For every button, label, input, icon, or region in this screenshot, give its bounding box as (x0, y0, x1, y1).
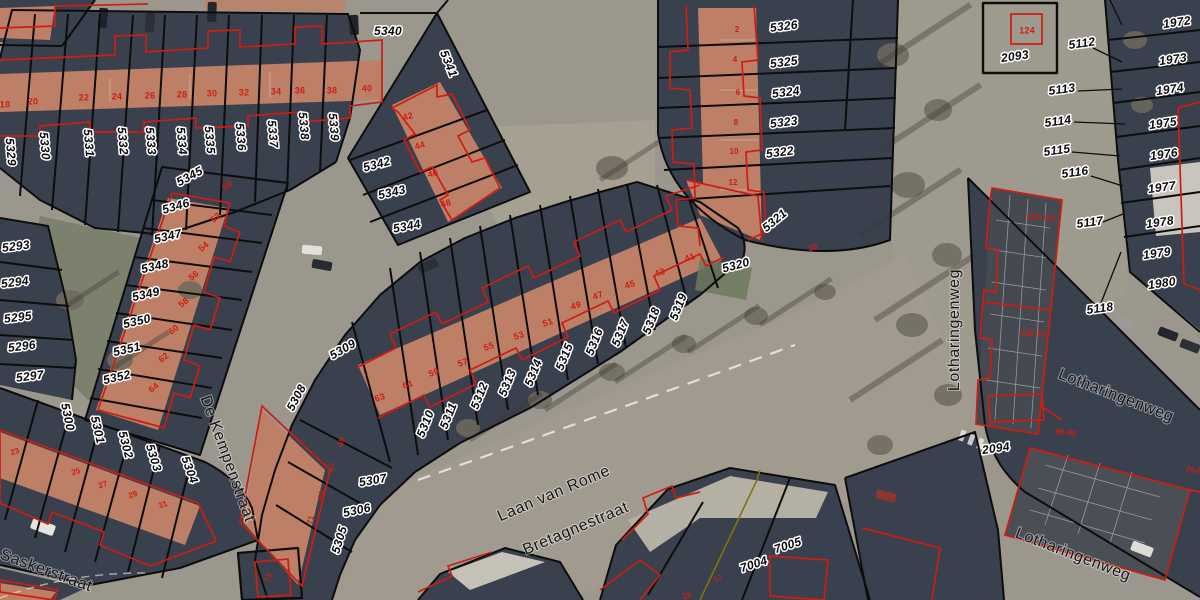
house-number-label: 32 (239, 87, 249, 97)
map-canvas[interactable]: 5329533053315332533353345335533653375338… (0, 0, 1200, 600)
house-number-label: 6 (736, 88, 741, 97)
parcel-label: 5337 (265, 119, 281, 149)
parcel-label: 5331 (81, 128, 97, 157)
house-number-label: 18 (0, 99, 10, 109)
parcel-label: 5329 (3, 137, 19, 166)
parcel-label: 5338 (296, 111, 312, 140)
parcel-label: 5334 (174, 126, 190, 155)
street-label: Lotharingenweg (946, 269, 963, 391)
house-number-label: 10 (730, 147, 739, 156)
house-number-label: 24 (112, 91, 122, 101)
house-number-label: 124 (1019, 25, 1035, 35)
house-number-label: 30 (207, 88, 217, 98)
house-number-label: 4 (733, 55, 738, 64)
house-number-label: 34 (271, 86, 281, 96)
house-number-label: 22 (79, 92, 89, 102)
parcel-label: 5333 (143, 126, 159, 155)
car (145, 12, 156, 33)
parcel-label: 5332 (115, 126, 131, 155)
parcel-label: 5330 (37, 131, 53, 160)
parcel-label: 5339 (326, 112, 342, 141)
house-number-label: 2 (735, 25, 740, 34)
house-number-label: 26 (145, 90, 155, 100)
house-number-label: 8 (734, 118, 739, 127)
house-number-label: 12 (729, 178, 738, 187)
house-number-label: 40 (362, 83, 372, 93)
map-viewport[interactable]: 5329533053315332533353345335533653375338… (0, 0, 1200, 600)
parcel-label: 5335 (202, 125, 218, 154)
parcel-label: 5340 (374, 24, 402, 38)
car (302, 245, 323, 256)
house-number-label: 38 (327, 85, 337, 95)
house-number-label: 20 (28, 96, 38, 106)
parcel-label: 5336 (233, 122, 249, 151)
house-number-label: 28 (177, 89, 187, 99)
house-number-label: 36 (295, 85, 305, 95)
